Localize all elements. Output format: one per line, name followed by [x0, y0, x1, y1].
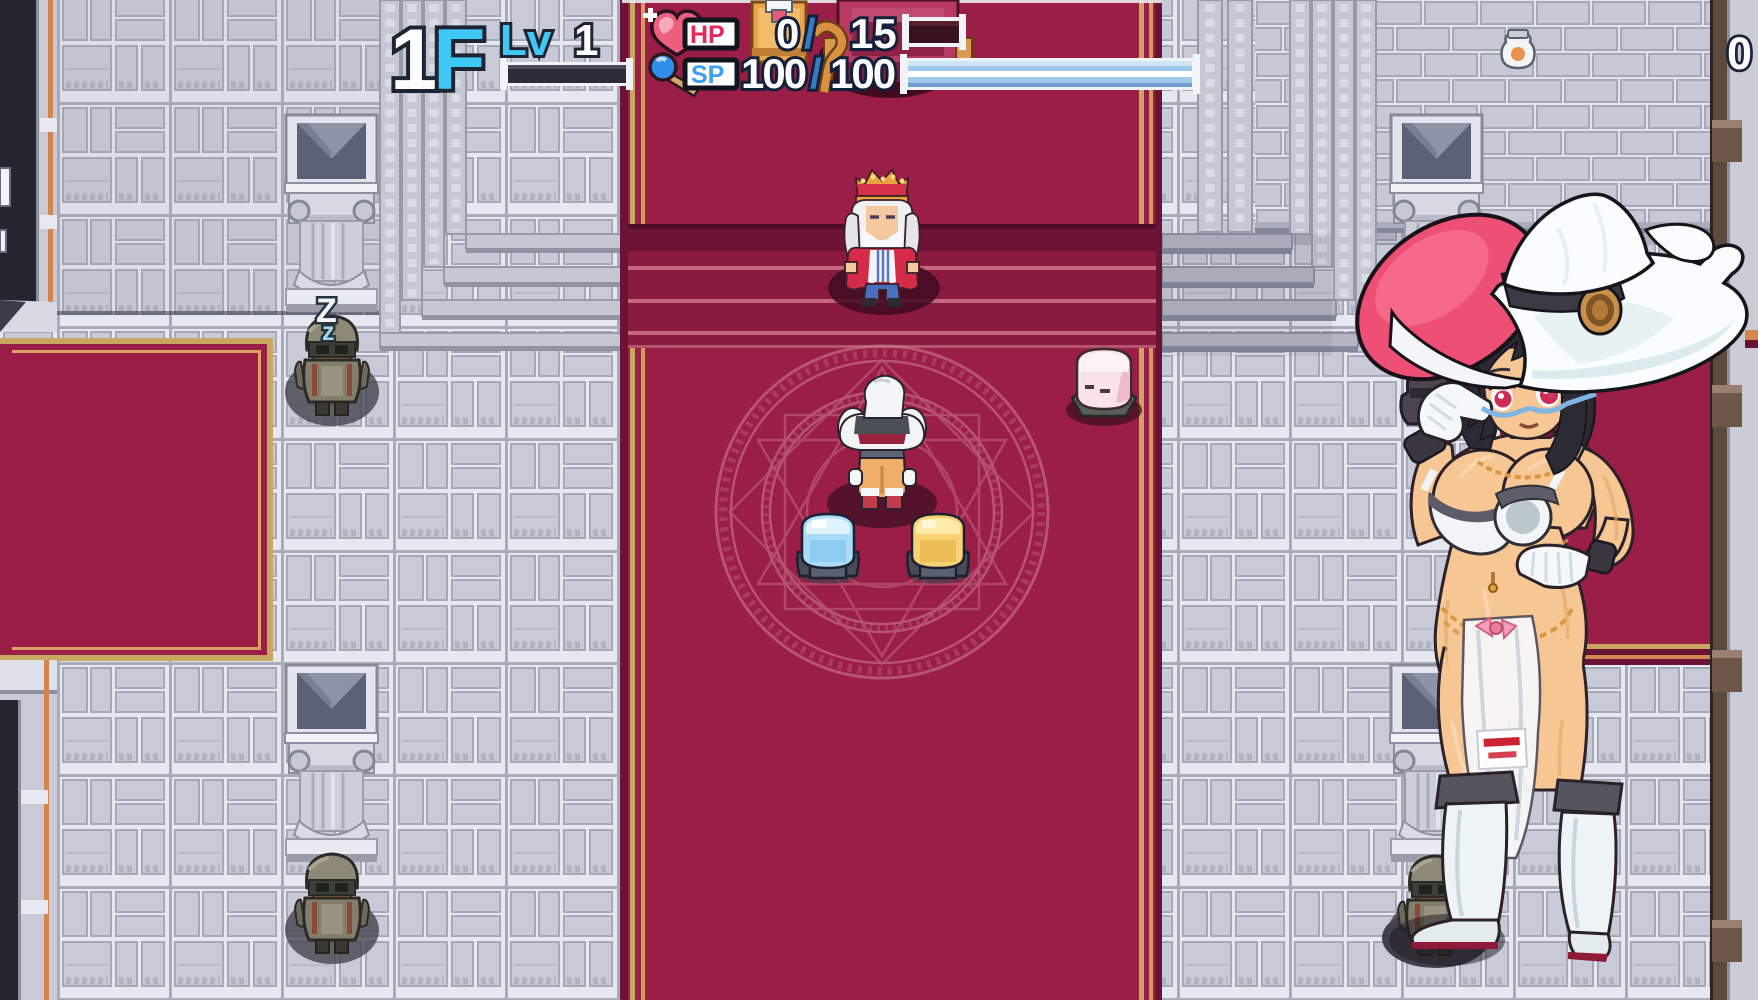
svg-text:0: 0	[1727, 28, 1752, 79]
svg-text:100: 100	[741, 50, 806, 97]
svg-text:SP: SP	[691, 61, 724, 89]
svg-text:/: /	[810, 50, 822, 97]
svg-text:1: 1	[574, 16, 598, 65]
svg-text:F: F	[433, 12, 486, 108]
svg-text:HP: HP	[690, 21, 725, 49]
svg-text:Lv: Lv	[500, 16, 552, 65]
svg-text:100: 100	[830, 50, 895, 97]
svg-text:1: 1	[390, 12, 436, 108]
svg-text:z: z	[322, 318, 335, 346]
